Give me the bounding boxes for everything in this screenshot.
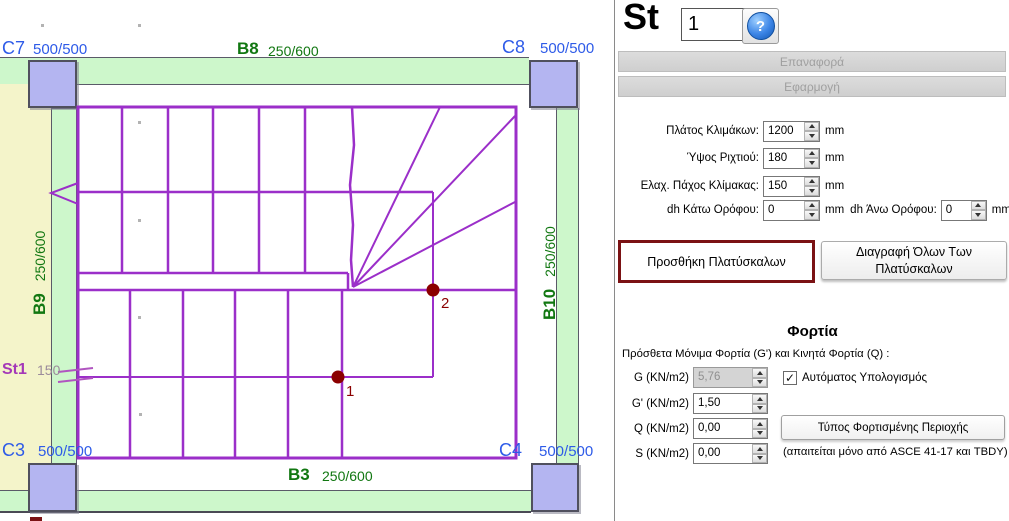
- auto-calc-label: Αυτόματος Υπολογισμός: [802, 372, 927, 384]
- column-c4-label: C4: [499, 440, 522, 461]
- dh-lower-value[interactable]: 0: [764, 201, 804, 220]
- stair-point-1[interactable]: [332, 371, 345, 384]
- flight-width-unit: mm: [825, 125, 844, 137]
- min-thickness-unit: mm: [825, 180, 844, 192]
- spin-down-button[interactable]: [752, 404, 767, 414]
- spin-up-button[interactable]: [752, 419, 767, 429]
- stair-editor-window: C7 500/500 B8 250/600 C8 500/500 B9250/6…: [0, 0, 1009, 521]
- beam-b9-dimension: 250/600: [32, 231, 48, 282]
- field-row-min-thickness: Ελαχ. Πάχος Κλίμακας: 150 mm: [615, 175, 1009, 197]
- stair-point-2[interactable]: [427, 284, 440, 297]
- q-load-label: Q (KN/m2): [615, 423, 693, 435]
- spin-down-button[interactable]: [804, 186, 819, 196]
- flight-width-stepper[interactable]: 1200: [763, 121, 820, 142]
- stair-id-label: St1: [2, 361, 27, 379]
- load-row-g-extra: G' (KN/m2) 1,50: [615, 393, 1009, 414]
- stair-plan-canvas[interactable]: C7 500/500 B8 250/600 C8 500/500 B9250/6…: [0, 0, 614, 521]
- help-icon: ?: [747, 12, 775, 40]
- help-button[interactable]: ?: [742, 8, 779, 44]
- stair-properties-panel: St ? Επαναφορά Εφαρμογή Πλάτος Κλιμάκων:…: [614, 0, 1009, 521]
- flight-width-value[interactable]: 1200: [764, 122, 804, 141]
- dh-upper-unit: mm: [992, 204, 1009, 216]
- q-load-stepper[interactable]: 0,00: [693, 418, 768, 439]
- beam-b10-label-group: B10250/600: [540, 226, 560, 320]
- spin-up-button[interactable]: [804, 177, 819, 187]
- column-c8-dimension: 500/500: [540, 40, 594, 57]
- column-c7-dimension: 500/500: [33, 41, 87, 58]
- s-load-stepper[interactable]: 0,00: [693, 443, 768, 464]
- spin-up-button[interactable]: [804, 122, 819, 132]
- spin-up-button[interactable]: [752, 444, 767, 454]
- g-load-stepper: 5,76: [693, 367, 768, 388]
- beam-b3-label: B3: [288, 465, 310, 485]
- dh-upper-stepper[interactable]: 0: [941, 200, 987, 221]
- break-line: [350, 107, 354, 287]
- beam-b3-dimension: 250/600: [322, 468, 373, 484]
- g-extra-load-stepper[interactable]: 1,50: [693, 393, 768, 414]
- g-load-label: G (KN/m2): [615, 372, 693, 384]
- spin-down-button[interactable]: [971, 210, 986, 220]
- g-extra-load-label: G' (KN/m2): [615, 398, 693, 410]
- loads-description: Πρόσθετα Μόνιμα Φορτία (G') και Κινητά Φ…: [622, 348, 889, 360]
- flight-direction-arrow: [51, 183, 78, 204]
- load-area-type-button[interactable]: Τύπος Φορτισμένης Περιοχής: [781, 415, 1005, 440]
- loads-heading: Φορτία: [615, 323, 1009, 340]
- spin-down-button: [752, 378, 767, 388]
- beam-b9-label-group: B9250/600: [30, 231, 50, 315]
- column-c3-label: C3: [2, 440, 25, 461]
- stair-title: St: [623, 0, 659, 38]
- delete-all-landings-button[interactable]: Διαγραφή Όλων Των Πλατύσκαλων: [821, 241, 1007, 280]
- spin-down-button[interactable]: [752, 454, 767, 464]
- field-row-flight-width: Πλάτος Κλιμάκων: 1200 mm: [615, 120, 1009, 142]
- spin-up-button[interactable]: [752, 394, 767, 404]
- g-load-value: 5,76: [694, 368, 752, 387]
- landing-strip: [78, 273, 348, 290]
- min-thickness-stepper[interactable]: 150: [763, 176, 820, 197]
- riser-height-value[interactable]: 180: [764, 149, 804, 168]
- riser-height-unit: mm: [825, 152, 844, 164]
- stair-thickness-label: 150: [37, 362, 60, 378]
- spin-down-button[interactable]: [804, 210, 819, 220]
- section-cut-marks: [58, 368, 93, 382]
- spin-up-button: [752, 368, 767, 378]
- riser-height-label: Ύψος Ριχτιού:: [615, 152, 763, 164]
- spin-up-button[interactable]: [804, 149, 819, 159]
- checkbox-check-icon: ✓: [785, 371, 795, 385]
- reset-button[interactable]: Επαναφορά: [618, 51, 1006, 72]
- add-landing-button[interactable]: Προσθήκη Πλατύσκαλων: [618, 240, 815, 283]
- point-1-label: 1: [346, 383, 354, 400]
- field-row-riser-height: Ύψος Ριχτιού: 180 mm: [615, 147, 1009, 169]
- asce-note: (απαιτείται μόνο από ASCE 41-17 και TBDY…: [783, 446, 1008, 458]
- flight-width-label: Πλάτος Κλιμάκων:: [615, 125, 763, 137]
- q-load-value[interactable]: 0,00: [694, 419, 752, 438]
- spin-down-button[interactable]: [804, 131, 819, 141]
- load-row-g: G (KN/m2) 5,76 ✓ Αυτόματος Υπολογισμός: [615, 367, 1009, 388]
- stair-number-input[interactable]: [681, 8, 745, 41]
- upper-flight-risers: [122, 107, 305, 273]
- dh-upper-label: dh Άνω Ορόφου:: [850, 204, 941, 216]
- spin-down-button[interactable]: [752, 429, 767, 439]
- lower-flight-risers: [130, 290, 342, 458]
- column-c8-label: C8: [502, 37, 525, 58]
- dh-lower-stepper[interactable]: 0: [763, 200, 820, 221]
- beam-b8-dimension: 250/600: [268, 43, 319, 59]
- min-thickness-value[interactable]: 150: [764, 177, 804, 196]
- g-extra-load-value[interactable]: 1,50: [694, 394, 752, 413]
- beam-b8-label: B8: [237, 39, 259, 59]
- beam-b9-label: B9: [30, 293, 49, 315]
- apply-button[interactable]: Εφαρμογή: [618, 76, 1006, 97]
- auto-calc-checkbox[interactable]: ✓: [783, 371, 797, 385]
- beam-b10-dimension: 250/600: [542, 226, 558, 277]
- stair-outline: [78, 107, 516, 458]
- dh-lower-unit: mm: [825, 204, 844, 216]
- dh-lower-label: dh Κάτω Ορόφου:: [615, 204, 763, 216]
- column-c3-dimension: 500/500: [38, 443, 92, 460]
- s-load-value[interactable]: 0,00: [694, 444, 752, 463]
- s-load-label: S (KN/m2): [615, 448, 693, 460]
- dh-upper-value[interactable]: 0: [942, 201, 971, 220]
- beam-b10-label: B10: [540, 289, 559, 320]
- spin-up-button[interactable]: [804, 201, 819, 211]
- column-c4-dimension: 500/500: [539, 443, 593, 460]
- column-c7-label: C7: [2, 38, 25, 59]
- spin-up-button[interactable]: [971, 201, 986, 211]
- spin-down-button[interactable]: [804, 158, 819, 168]
- point-2-label: 2: [441, 295, 449, 312]
- riser-height-stepper[interactable]: 180: [763, 148, 820, 169]
- min-thickness-label: Ελαχ. Πάχος Κλίμακας:: [615, 180, 763, 192]
- bottom-edge-mark: [30, 517, 42, 521]
- field-row-dh: dh Κάτω Ορόφου: 0 mm dh Άνω Ορόφου: 0 mm: [615, 199, 1009, 221]
